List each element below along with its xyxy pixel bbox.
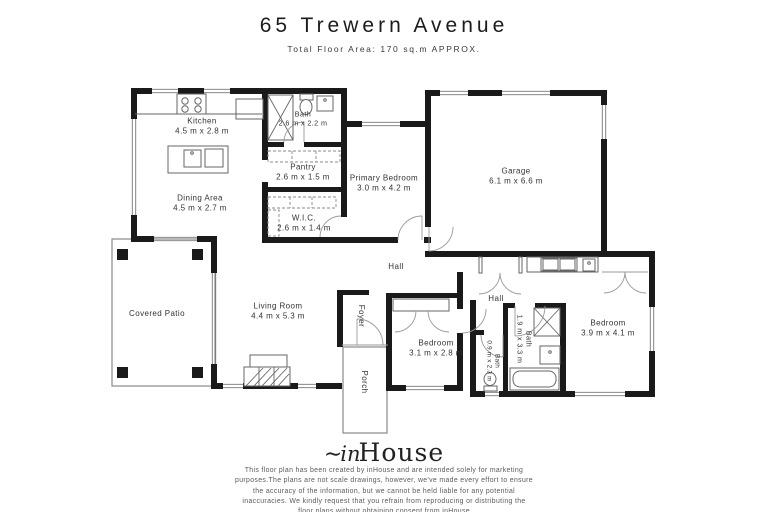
room-label-pantry: Pantry2.6 m x 1.5 m xyxy=(276,163,330,184)
room-label-kitchen: Kitchen4.5 m x 2.8 m xyxy=(175,117,229,138)
inhouse-logo: ∼inHouse xyxy=(0,438,768,467)
room-label-covered-patio: Covered Patio xyxy=(129,309,185,319)
room-label-garage: Garage6.1 m x 6.6 m xyxy=(489,167,543,188)
room-label-bath-rear: Bath1.9 m x 3.3 m xyxy=(515,315,534,364)
room-label-wic: W.I.C.2.6 m x 1.4 m xyxy=(277,214,331,235)
room-label-primary-bedroom: Primary Bedroom3.0 m x 4.2 m xyxy=(350,174,418,195)
room-label-bath-small: Bath0.9 m x 2.3 m xyxy=(484,340,501,381)
floor-plan-page: 65 Trewern Avenue Total Floor Area: 170 … xyxy=(0,0,768,512)
disclaimer-text: This floor plan has been created by inHo… xyxy=(0,466,768,512)
room-label-bath-top: Bath2.6 m x 2.2 m xyxy=(279,110,328,129)
floor-plan-canvas xyxy=(0,0,768,512)
room-label-living-room: Living Room4.4 m x 5.3 m xyxy=(251,302,305,323)
room-label-porch: Porch xyxy=(359,371,369,394)
room-label-hall: Hall xyxy=(388,262,403,272)
logo-swash: ∼ xyxy=(324,442,340,467)
room-label-foyer: Foyer xyxy=(356,305,366,327)
room-label-bedroom-3: Bedroom3.9 m x 4.1 m xyxy=(581,319,635,340)
room-label-bedroom-2: Bedroom3.1 m x 2.8 m xyxy=(409,339,463,360)
logo-house: House xyxy=(359,438,445,467)
logo-in: in xyxy=(340,442,360,466)
room-label-dining-area: Dining Area4.5 m x 2.7 m xyxy=(173,194,227,215)
room-label-rear-hall: Hall xyxy=(488,294,503,304)
